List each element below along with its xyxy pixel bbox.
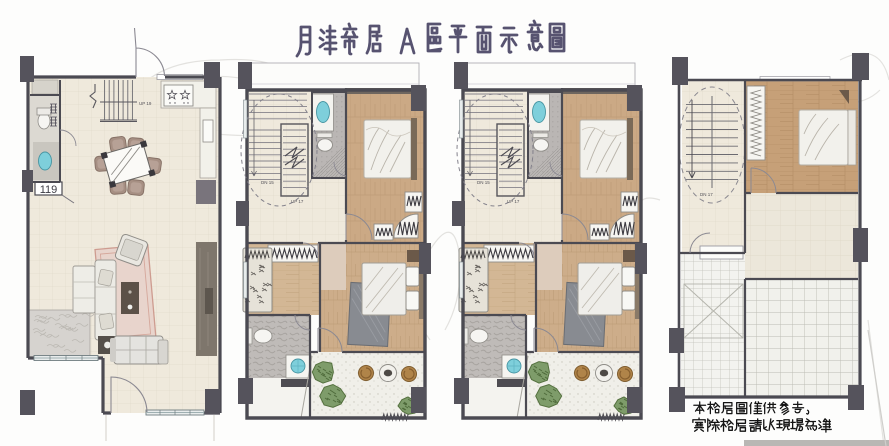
- svg-text:DN 15: DN 15: [261, 180, 274, 185]
- svg-text:119: 119: [40, 184, 58, 196]
- svg-text:UP 19: UP 19: [139, 101, 152, 106]
- svg-text:UP 17: UP 17: [291, 199, 304, 204]
- svg-text:DN 17: DN 17: [700, 192, 713, 197]
